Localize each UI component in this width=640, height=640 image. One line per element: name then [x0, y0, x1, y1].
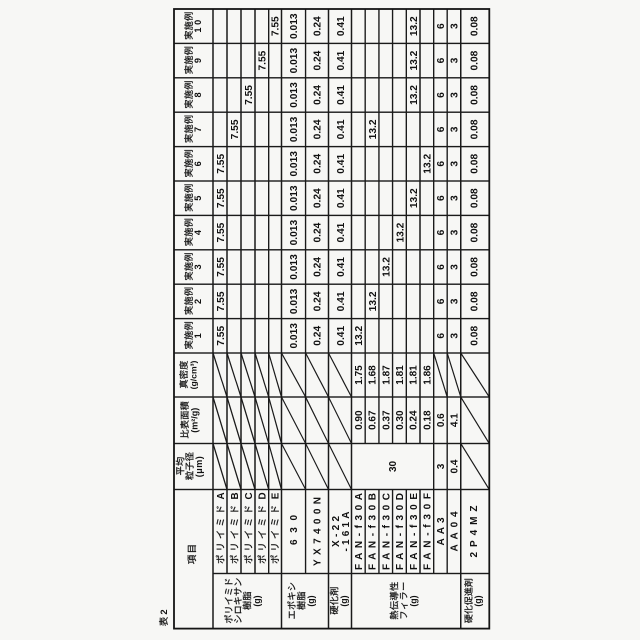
svg-text:0.41: 0.41: [336, 257, 347, 277]
svg-text:4.1: 4.1: [450, 413, 461, 427]
svg-text:0.6: 0.6: [436, 413, 447, 427]
svg-text:7.55: 7.55: [216, 257, 227, 277]
svg-text:FAN-f30F: FAN-f30F: [423, 493, 434, 570]
svg-text:FAN-f30E: FAN-f30E: [409, 493, 420, 570]
svg-text:0.08: 0.08: [469, 188, 480, 208]
svg-text:9: 9: [193, 58, 203, 63]
svg-text:FAN-f30A: FAN-f30A: [354, 493, 365, 570]
svg-text:0.013: 0.013: [289, 116, 300, 142]
svg-text:3: 3: [193, 264, 203, 269]
svg-text:6: 6: [436, 161, 447, 167]
svg-text:0.24: 0.24: [313, 291, 324, 311]
svg-text:0.24: 0.24: [313, 188, 324, 208]
svg-text:2: 2: [193, 299, 203, 304]
svg-text:0.4: 0.4: [450, 459, 461, 473]
svg-text:13.2: 13.2: [382, 257, 393, 277]
svg-text:FAN-f30C: FAN-f30C: [381, 493, 392, 570]
svg-text:13.2: 13.2: [423, 154, 434, 174]
svg-text:(g): (g): [252, 595, 262, 606]
svg-text:6: 6: [436, 333, 447, 339]
svg-text:0.41: 0.41: [336, 154, 347, 174]
svg-text:AA04: AA04: [450, 511, 461, 551]
svg-text:13.2: 13.2: [395, 222, 406, 242]
svg-text:7: 7: [193, 127, 203, 132]
svg-text:3: 3: [450, 229, 461, 235]
svg-text:YX7400N: YX7400N: [312, 497, 323, 566]
svg-text:7.55: 7.55: [216, 326, 227, 346]
svg-text:0.24: 0.24: [313, 119, 324, 139]
svg-text:3: 3: [450, 92, 461, 98]
svg-text:0.41: 0.41: [336, 291, 347, 311]
svg-text:0.013: 0.013: [289, 82, 300, 108]
svg-text:7.55: 7.55: [216, 291, 227, 311]
svg-text:13.2: 13.2: [409, 16, 420, 36]
svg-text:(g): (g): [339, 595, 349, 606]
svg-text:3: 3: [436, 463, 447, 469]
svg-text:30: 30: [388, 461, 399, 473]
svg-text:0.013: 0.013: [289, 220, 300, 246]
svg-text:0.37: 0.37: [381, 410, 392, 430]
svg-text:D: D: [258, 492, 269, 499]
svg-text:0.24: 0.24: [409, 410, 420, 430]
svg-text:0.67: 0.67: [368, 410, 379, 430]
svg-text:1.81: 1.81: [395, 365, 406, 385]
svg-text:0.08: 0.08: [469, 154, 480, 174]
svg-text:7.55: 7.55: [216, 154, 227, 174]
svg-text:8: 8: [193, 92, 203, 97]
svg-text:6: 6: [436, 298, 447, 304]
svg-text:1.87: 1.87: [381, 365, 392, 385]
svg-text:3: 3: [450, 126, 461, 132]
svg-text:0.08: 0.08: [469, 119, 480, 139]
svg-text:13.2: 13.2: [368, 119, 379, 139]
svg-text:0.24: 0.24: [313, 50, 324, 70]
svg-text:1.75: 1.75: [354, 365, 365, 385]
svg-text:1.81: 1.81: [409, 365, 420, 385]
svg-text:6: 6: [436, 92, 447, 98]
svg-text:2P4MZ: 2P4MZ: [469, 506, 480, 558]
svg-text:0.013: 0.013: [289, 151, 300, 177]
svg-text:1.86: 1.86: [422, 365, 433, 385]
svg-text:(g): (g): [408, 595, 418, 606]
svg-text:0.08: 0.08: [469, 85, 480, 105]
svg-text:0.41: 0.41: [336, 85, 347, 105]
svg-text:3: 3: [450, 23, 461, 29]
svg-text:13.2: 13.2: [409, 188, 420, 208]
svg-text:0.41: 0.41: [336, 188, 347, 208]
svg-text:C: C: [244, 492, 255, 499]
svg-text:(g): (g): [473, 595, 483, 606]
svg-text:3: 3: [450, 333, 461, 339]
svg-text:B: B: [230, 492, 241, 499]
svg-text:0.41: 0.41: [336, 326, 347, 346]
svg-text:6 3 0: 6 3 0: [289, 515, 300, 545]
svg-text:(g/cm³): (g/cm³): [189, 361, 199, 390]
svg-text:13.2: 13.2: [409, 85, 420, 105]
svg-text:0.24: 0.24: [313, 222, 324, 242]
svg-text:0.24: 0.24: [313, 85, 324, 105]
svg-text:3: 3: [450, 57, 461, 63]
svg-text:6: 6: [436, 126, 447, 132]
svg-text:0.30: 0.30: [395, 410, 406, 430]
svg-text:1 0: 1 0: [193, 20, 203, 33]
svg-text:3: 3: [450, 264, 461, 270]
svg-text:0.41: 0.41: [336, 16, 347, 36]
svg-text:3: 3: [450, 298, 461, 304]
svg-text:6: 6: [436, 57, 447, 63]
svg-text:3: 3: [450, 195, 461, 201]
svg-text:A: A: [216, 492, 227, 499]
svg-text:(μm): (μm): [194, 456, 204, 478]
svg-text:13.2: 13.2: [409, 50, 420, 70]
svg-text:0.90: 0.90: [354, 410, 365, 430]
svg-text:E: E: [270, 492, 281, 499]
svg-text:0.013: 0.013: [289, 288, 300, 314]
svg-text:AA3: AA3: [436, 517, 447, 545]
svg-text:(m²/g): (m²/g): [190, 408, 200, 433]
svg-text:7.55: 7.55: [216, 222, 227, 242]
svg-text:6: 6: [436, 23, 447, 29]
svg-text:6: 6: [436, 229, 447, 235]
svg-text:2: 2: [158, 609, 169, 614]
svg-text:0.08: 0.08: [469, 16, 480, 36]
svg-text:0.013: 0.013: [289, 48, 300, 74]
svg-text:-161A: -161A: [341, 512, 352, 552]
svg-text:6: 6: [193, 161, 203, 166]
svg-text:0.41: 0.41: [336, 50, 347, 70]
svg-text:0.24: 0.24: [313, 16, 324, 36]
svg-text:0.08: 0.08: [469, 50, 480, 70]
svg-text:7.55: 7.55: [230, 119, 241, 139]
svg-text:7.55: 7.55: [271, 16, 282, 36]
svg-text:(g): (g): [306, 595, 316, 606]
svg-text:0.08: 0.08: [469, 257, 480, 277]
svg-text:13.2: 13.2: [354, 326, 365, 346]
svg-text:0.41: 0.41: [336, 119, 347, 139]
svg-text:FAN-f30D: FAN-f30D: [395, 493, 406, 570]
svg-text:7.55: 7.55: [244, 85, 255, 105]
svg-text:0.41: 0.41: [336, 222, 347, 242]
svg-text:0.013: 0.013: [289, 323, 300, 349]
svg-text:13.2: 13.2: [368, 291, 379, 311]
svg-text:0.24: 0.24: [313, 154, 324, 174]
svg-text:5: 5: [193, 196, 203, 201]
svg-text:FAN-f30B: FAN-f30B: [368, 493, 379, 570]
svg-text:1: 1: [193, 333, 203, 338]
svg-text:1.68: 1.68: [368, 365, 379, 385]
svg-text:6: 6: [436, 264, 447, 270]
svg-text:0.08: 0.08: [469, 326, 480, 346]
svg-text:7.55: 7.55: [216, 188, 227, 208]
svg-text:0.013: 0.013: [289, 185, 300, 211]
svg-text:0.013: 0.013: [289, 13, 300, 39]
svg-text:0.013: 0.013: [289, 254, 300, 280]
svg-text:0.08: 0.08: [469, 222, 480, 242]
svg-text:3: 3: [450, 161, 461, 167]
svg-text:0.24: 0.24: [313, 326, 324, 346]
svg-text:0.18: 0.18: [422, 410, 433, 430]
svg-text:4: 4: [193, 229, 203, 235]
svg-text:0.08: 0.08: [469, 291, 480, 311]
svg-text:7.55: 7.55: [258, 50, 269, 70]
svg-text:0.24: 0.24: [313, 257, 324, 277]
svg-text:6: 6: [436, 195, 447, 201]
